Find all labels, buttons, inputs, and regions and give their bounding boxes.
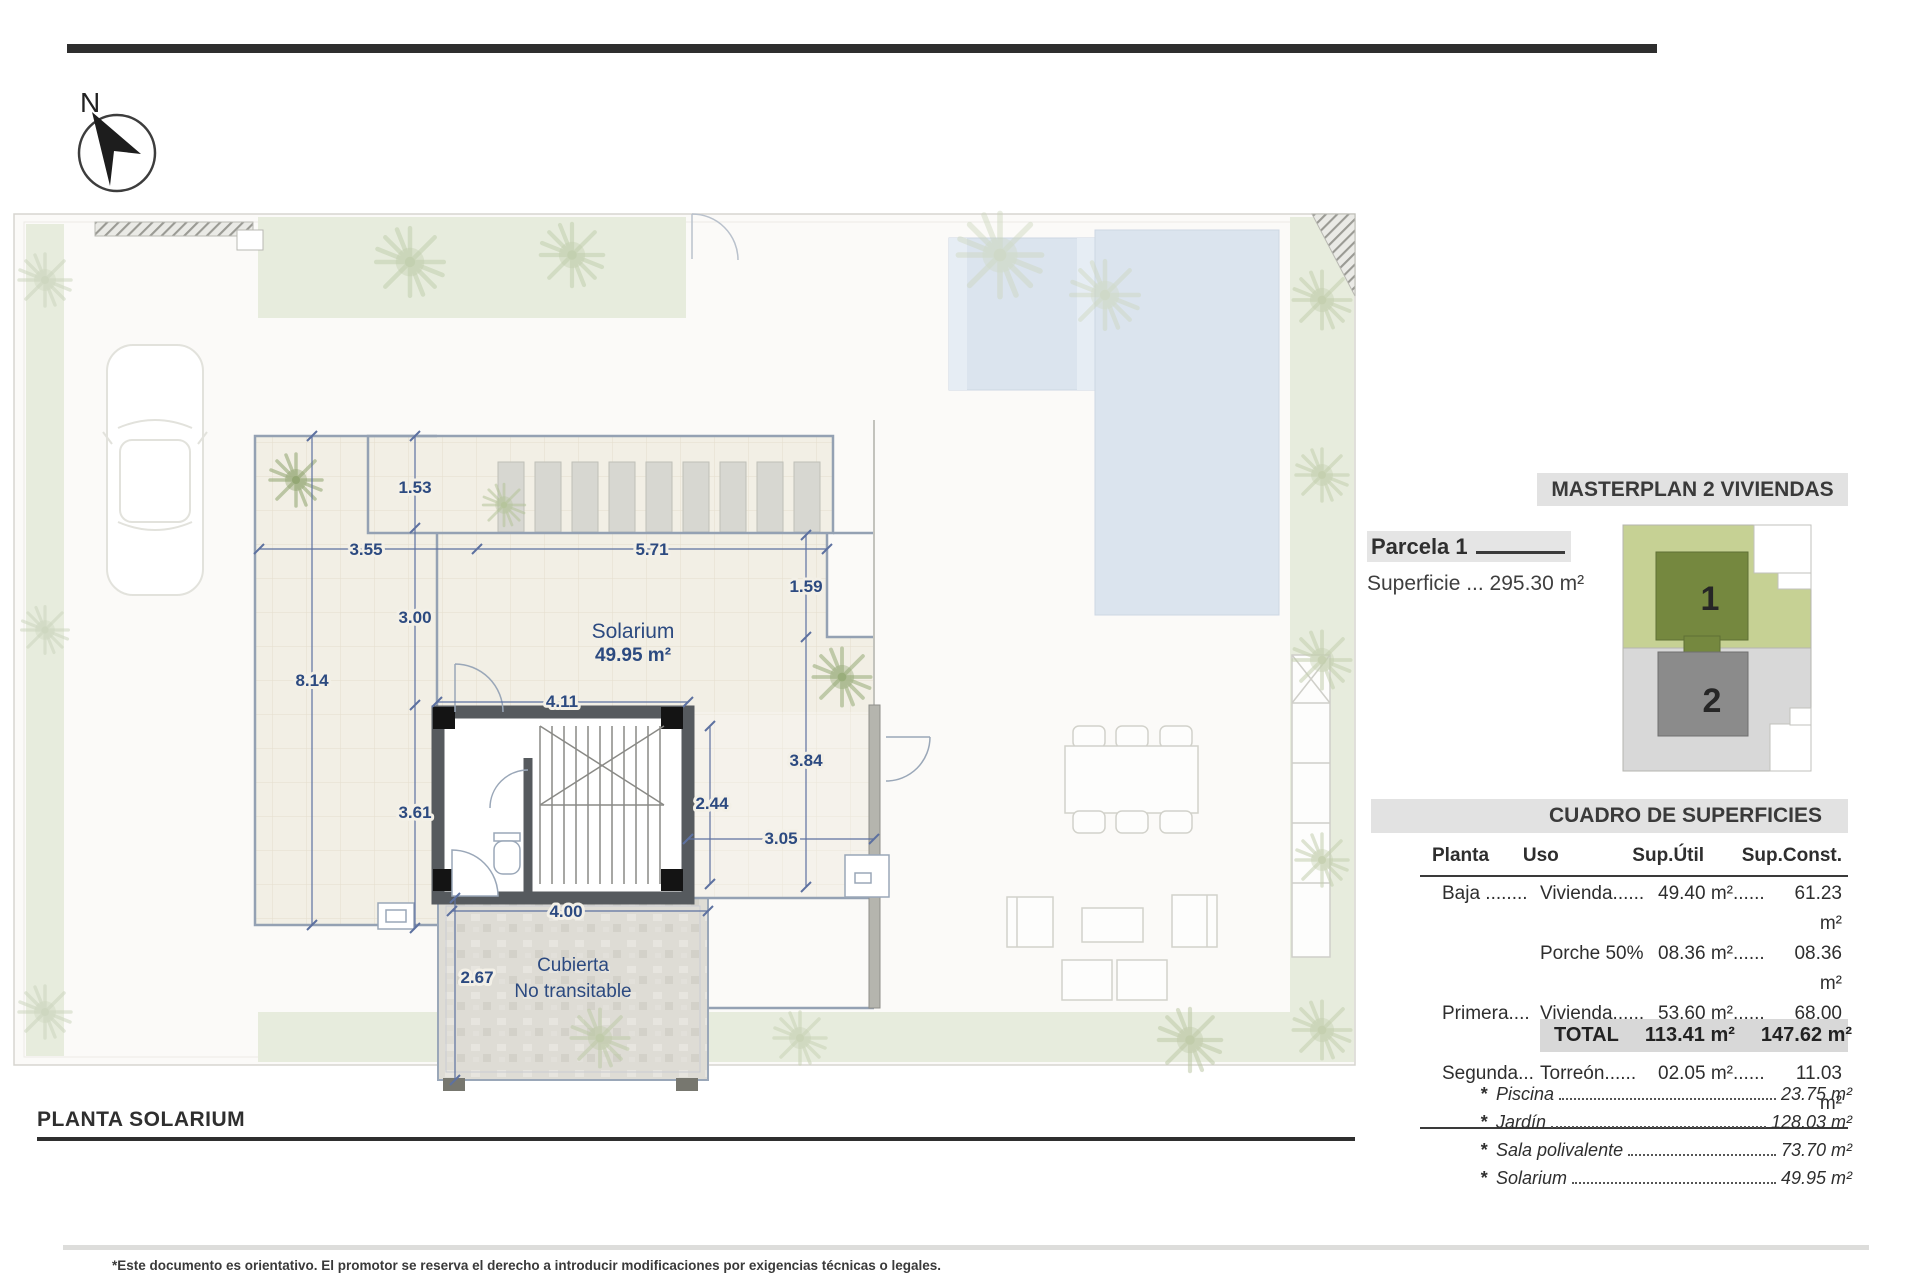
cell: Vivienda...... [1540,879,1658,939]
driveway-gate [95,222,253,236]
total-row: TOTAL 113.41 m² 147.62 m² [1540,1019,1848,1052]
table-row: Baja ........ Vivienda...... 49.40 m²...… [1420,879,1848,939]
extra-label: Sala polivalente [1496,1140,1623,1161]
dim-label: 1.53 [398,478,431,497]
dim-label: 2.44 [695,794,729,813]
north-arrow-icon: N [79,87,155,191]
bullet: * [1480,1140,1496,1161]
table-row: Porche 50% 08.36 m²...... 08.36 m² [1420,939,1848,999]
col-header: Sup.Const. [1742,845,1848,867]
superficie-label: Superficie ... 295.30 m² [1367,572,1627,596]
cell: 61.23 m² [1776,879,1848,939]
lounge-set [1007,895,1217,1000]
table-rule [1420,875,1848,877]
pergola-slats [498,462,820,532]
dim-label: 4.00 [549,902,582,921]
stair-core [433,664,688,898]
parked-car [103,345,207,595]
dim-label: 3.61 [398,803,431,822]
total-const-value: 147.62 m² [1735,1024,1852,1047]
dot-leader [1559,1098,1776,1100]
terrace-walls [255,436,874,1008]
dim-label: 3.05 [764,829,797,848]
extra-label: Jardín [1496,1112,1546,1133]
solarium-label: Solarium [592,620,675,643]
cubierta-label: Cubierta [537,955,609,976]
cubierta-roof [438,898,708,1091]
surface-table-title: CUADRO DE SUPERFICIES [1371,799,1848,833]
dim-label: 3.55 [349,540,382,559]
cell [1442,939,1540,999]
dot-leader [1628,1154,1776,1156]
dim-label: 3.00 [398,608,431,627]
minimap-unit2-label: 2 [1703,682,1722,720]
cell: 08.36 m² [1776,939,1848,999]
dot-leader [1551,1126,1766,1128]
disclaimer-text: *Este documento es orientativo. El promo… [112,1258,941,1273]
masterplan-minimap: 1 2 [1622,524,1812,772]
bullet: * [1480,1168,1496,1189]
page-title: PLANTA SOLARIUM [37,1108,245,1132]
cell: 49.40 m²...... [1658,879,1776,939]
title-rule [37,1137,1355,1141]
svg-text:N: N [80,87,100,118]
total-util-value: 113.41 m² [1619,1024,1735,1047]
dim-label: 2.67 [460,968,493,987]
palm-trees [19,213,1351,1071]
col-header: Uso [1523,845,1632,867]
top-rule [67,44,1657,53]
street-corner-hatch [1312,214,1355,296]
surface-table-header: Planta Uso Sup.Útil Sup.Const. [1420,845,1848,873]
list-item: * Jardín 128.03 m² [1480,1112,1852,1140]
total-label: TOTAL [1540,1024,1619,1047]
dim-label: 3.84 [789,751,823,770]
parcela-underline [1476,537,1565,554]
extra-value: 73.70 m² [1781,1140,1852,1161]
bathroom [452,833,520,896]
footer-rule [63,1245,1869,1250]
cubierta-label2: No transitable [514,981,631,1002]
bullet: * [1480,1112,1496,1133]
extras-list: * Piscina 23.75 m² * Jardín 128.03 m² * … [1480,1084,1852,1196]
outdoor-kitchen-panels [1292,655,1330,957]
col-header: Sup.Útil [1632,845,1741,867]
door-arcs [455,664,528,808]
minimap-unit1-label: 1 [1701,580,1720,618]
cell: Primera.... [1442,999,1540,1059]
gate-post [237,230,263,250]
col-header: Planta [1432,845,1523,867]
extra-value: 23.75 m² [1781,1084,1852,1105]
masterplan-title: MASTERPLAN 2 VIVIENDAS [1537,473,1848,506]
utility-box [378,855,889,929]
dim-label: 4.11 [546,692,578,711]
east-facade [869,420,930,1008]
dining-set [1065,726,1198,833]
dim-label: 8.14 [295,671,329,690]
list-item: * Piscina 23.75 m² [1480,1084,1852,1112]
dimension-lines [254,431,879,1085]
solarium-terrace [255,436,874,925]
extra-value: 49.95 m² [1781,1168,1852,1189]
parcela-label: Parcela 1 [1367,531,1571,562]
swimming-pool [949,230,1279,615]
solarium-area-label: 49.95 m² [595,645,671,666]
list-item: * Solarium 49.95 m² [1480,1168,1852,1196]
dim-label: 5.71 [635,540,668,559]
extra-value: 128.03 m² [1771,1112,1852,1133]
garden-strips [26,217,1354,1062]
cell: Porche 50% [1540,939,1658,999]
cell: Baja ........ [1442,879,1540,939]
bullet: * [1480,1084,1496,1105]
cell: 08.36 m²...... [1658,939,1776,999]
dim-label: 1.59 [789,577,822,596]
dot-leader [1572,1182,1776,1184]
site-boundary [14,214,1355,1065]
parcela-text: Parcela 1 [1371,534,1468,560]
stair-treads [540,726,664,884]
extra-label: Solarium [1496,1168,1567,1189]
extra-label: Piscina [1496,1084,1554,1105]
entry-gate-arc [692,214,738,260]
list-item: * Sala polivalente 73.70 m² [1480,1140,1852,1168]
